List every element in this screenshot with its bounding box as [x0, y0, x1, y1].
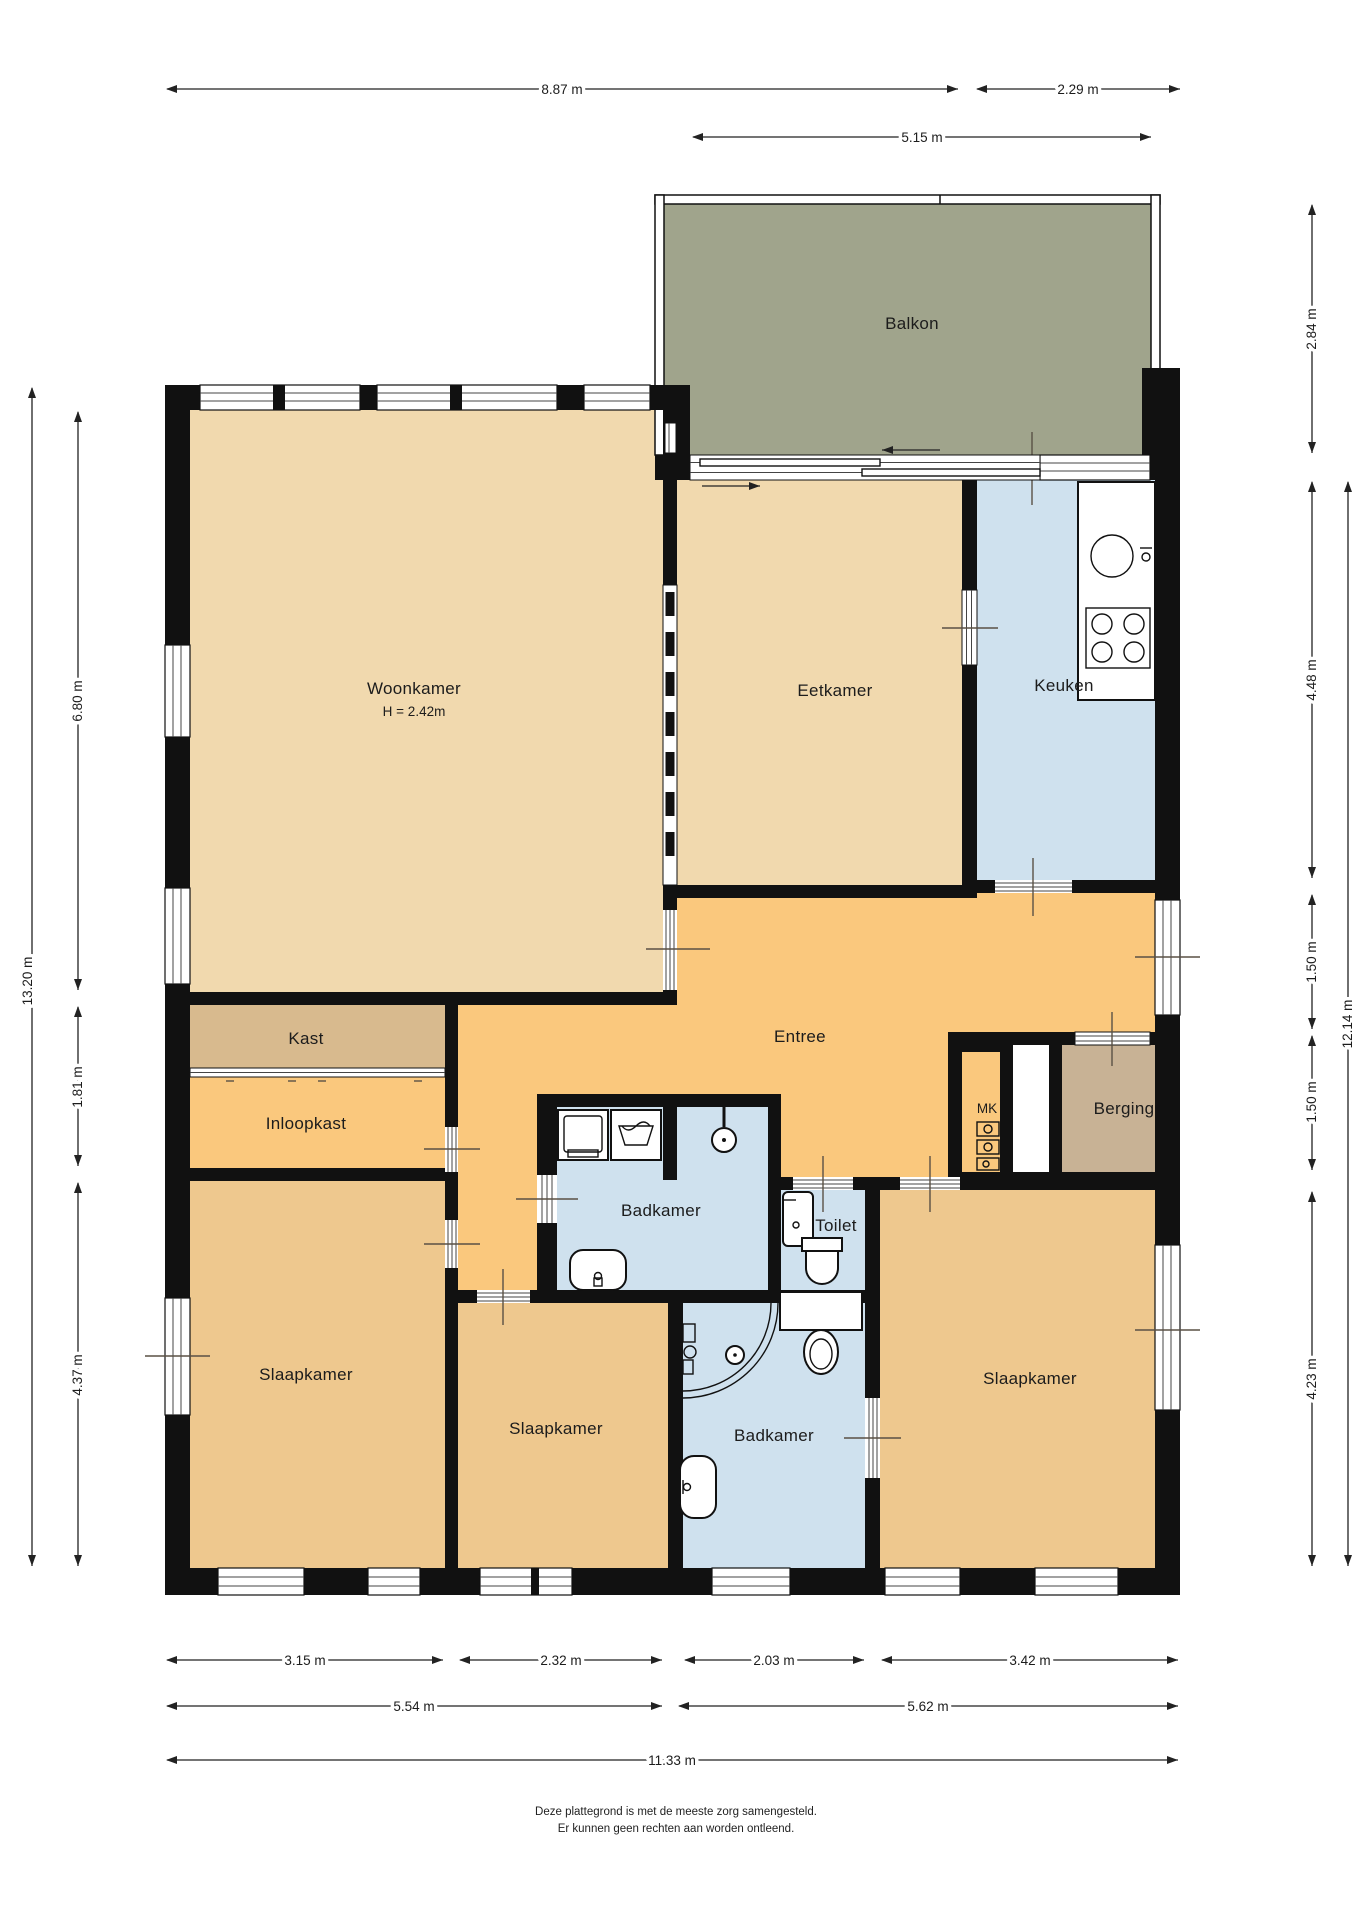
dim-1-81: 1.81 m — [70, 1066, 85, 1107]
window-bottom-5 — [885, 1568, 960, 1595]
kitchen-counter — [1078, 482, 1155, 700]
dim-5-54: 5.54 m — [393, 1699, 434, 1714]
shaft-void — [1013, 1045, 1049, 1172]
dim-1-50-b: 1.50 m — [1304, 1081, 1319, 1122]
dim-11-33: 11.33 m — [648, 1753, 696, 1768]
dim-4-48: 4.48 m — [1304, 659, 1319, 700]
label-balkon: Balkon — [885, 314, 939, 333]
window-bottom-6 — [1035, 1568, 1118, 1595]
dim-5-15: 5.15 m — [901, 130, 942, 145]
entree-floor-left — [458, 1005, 677, 1094]
label-mk: MK — [977, 1101, 997, 1116]
floorplan-page: Balkon Woonkamer H = 2.42m Eetkamer Keuk… — [0, 0, 1358, 1920]
window-top-2 — [377, 385, 557, 410]
dim-4-37: 4.37 m — [70, 1354, 85, 1395]
window-top-1 — [200, 385, 360, 410]
label-eetkamer: Eetkamer — [797, 681, 872, 700]
dim-8-87: 8.87 m — [541, 82, 582, 97]
window-left-2 — [165, 888, 190, 984]
footer-disclaimer: Deze plattegrond is met de meeste zorg s… — [535, 1806, 817, 1835]
window-bottom-4 — [712, 1568, 790, 1595]
label-badkamer-bottom: Badkamer — [734, 1426, 814, 1445]
dim-2-03: 2.03 m — [753, 1653, 794, 1668]
window-bottom-3 — [480, 1568, 572, 1595]
label-entree: Entree — [774, 1027, 826, 1046]
entree-floor-right — [962, 893, 1155, 1032]
dim-13-20: 13.20 m — [20, 957, 35, 1006]
label-keuken: Keuken — [1034, 676, 1093, 695]
dim-2-84: 2.84 m — [1304, 308, 1319, 349]
label-woonkamer: Woonkamer — [367, 679, 461, 698]
floorplan-drawing: Balkon Woonkamer H = 2.42m Eetkamer Keuk… — [0, 0, 1358, 1920]
label-inloopkast: Inloopkast — [266, 1114, 347, 1133]
label-kast: Kast — [288, 1029, 323, 1048]
label-slaapkamer-right: Slaapkamer — [983, 1369, 1077, 1388]
dim-2-32: 2.32 m — [540, 1653, 581, 1668]
window-bottom-2 — [368, 1568, 420, 1595]
footer-line-1: Deze plattegrond is met de meeste zorg s… — [535, 1806, 817, 1818]
dim-4-23: 4.23 m — [1304, 1358, 1319, 1399]
dim-12-14: 12.14 m — [1340, 1000, 1355, 1049]
washbasin-bottom — [680, 1456, 716, 1518]
footer-line-2: Er kunnen geen rechten aan worden ontlee… — [558, 1823, 795, 1835]
window-bottom-1 — [218, 1568, 304, 1595]
washing-machine — [558, 1110, 608, 1160]
window-top-3 — [584, 385, 650, 410]
label-badkamer-top: Badkamer — [621, 1201, 701, 1220]
dim-5-62: 5.62 m — [907, 1699, 948, 1714]
label-toilet: Toilet — [815, 1216, 857, 1235]
label-berging: Berging — [1094, 1099, 1155, 1118]
washbasin-top — [570, 1250, 626, 1290]
window-left-1 — [165, 645, 190, 737]
dim-2-29: 2.29 m — [1057, 82, 1098, 97]
open-wall-dashed — [663, 585, 677, 885]
dim-3-15: 3.15 m — [284, 1653, 325, 1668]
label-woonkamer-height: H = 2.42m — [383, 704, 446, 719]
toilet-wc — [802, 1238, 842, 1284]
window-balkon-side — [665, 423, 676, 453]
dim-1-50-a: 1.50 m — [1304, 941, 1319, 982]
woonkamer-floor — [190, 410, 663, 992]
laundry-basin — [611, 1110, 661, 1160]
entree-corridor — [458, 1094, 537, 1290]
dim-3-42: 3.42 m — [1009, 1653, 1050, 1668]
dim-6-80: 6.80 m — [70, 680, 85, 721]
label-slaapkamer-mid: Slaapkamer — [509, 1419, 603, 1438]
label-slaapkamer-left: Slaapkamer — [259, 1365, 353, 1384]
